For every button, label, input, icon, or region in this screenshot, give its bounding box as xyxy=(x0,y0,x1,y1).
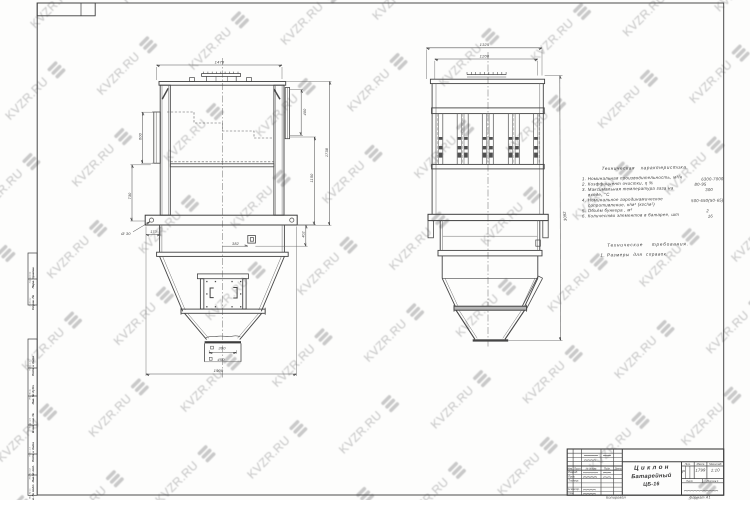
svg-text:1325: 1325 xyxy=(480,42,490,47)
svg-text:382: 382 xyxy=(232,242,240,246)
svg-text:450: 450 xyxy=(217,357,225,362)
svg-text:Инв. № по: Инв. № по xyxy=(29,488,32,499)
svg-text:170: 170 xyxy=(150,230,157,234)
svg-text:Формат А1: Формат А1 xyxy=(689,495,711,499)
svg-text:300: 300 xyxy=(218,346,226,351)
svg-text:Подп. и д: Подп. и д xyxy=(29,360,32,370)
svg-text:Подп. и д: Подп. и д xyxy=(29,446,32,456)
svg-text:Ø 30: Ø 30 xyxy=(120,231,131,236)
svg-text:Р: Р xyxy=(682,469,685,474)
svg-text:Ц и к л о н: Ц и к л о н xyxy=(634,464,669,472)
svg-text:2: 2 xyxy=(705,208,709,213)
svg-text:Подп.: Подп. xyxy=(604,466,611,470)
svg-text:Копировал: Копировал xyxy=(606,495,626,499)
svg-text:Н.контр.: Н.контр. xyxy=(568,487,580,491)
svg-text:80-95: 80-95 xyxy=(694,182,706,187)
svg-text:Масштаб: Масштаб xyxy=(709,462,722,466)
svg-text:Изм.: Изм. xyxy=(567,466,573,470)
svg-text:500-650(50-65): 500-650(50-65) xyxy=(691,198,724,204)
svg-text:Масса: Масса xyxy=(697,462,705,466)
svg-text:подписи: подписи xyxy=(29,297,32,306)
svg-text:600: 600 xyxy=(138,132,142,140)
svg-text:1:10: 1:10 xyxy=(711,467,721,472)
svg-text:Листов 1: Листов 1 xyxy=(705,479,719,483)
svg-text:Инв. № ду: Инв. № ду xyxy=(29,388,32,399)
svg-text:1738: 1738 xyxy=(325,147,329,157)
svg-text:Лист: Лист xyxy=(573,466,582,470)
svg-text:16: 16 xyxy=(708,213,714,218)
svg-text:Разраб.: Разраб. xyxy=(568,470,578,474)
svg-text:№ докум.: № докум. xyxy=(586,466,598,470)
svg-text:400: 400 xyxy=(303,108,307,116)
svg-text:1150: 1150 xyxy=(310,173,314,183)
svg-text:Батарейный: Батарейный xyxy=(631,472,672,480)
svg-text:1200: 1200 xyxy=(480,53,490,58)
svg-text:402: 402 xyxy=(302,231,306,237)
svg-text:Лист: Лист xyxy=(685,479,694,483)
svg-text:Взам. инв: Взам. инв xyxy=(30,417,32,428)
svg-text:1799: 1799 xyxy=(695,467,706,472)
svg-text:Дата: Дата xyxy=(614,466,622,470)
svg-text:документа: документа xyxy=(29,271,32,283)
svg-text:ЦБ-16: ЦБ-16 xyxy=(643,481,660,488)
svg-text:Лит.: Лит. xyxy=(684,462,691,466)
svg-text:730: 730 xyxy=(128,192,132,200)
svg-text:Т.контр.: Т.контр. xyxy=(568,479,579,483)
svg-text:1900: 1900 xyxy=(214,368,224,373)
svg-text:Пров.: Пров. xyxy=(568,474,575,478)
svg-text:Утв.: Утв. xyxy=(568,491,574,495)
svg-text:Инв.№ под: Инв.№ под xyxy=(29,467,32,479)
svg-text:1478: 1478 xyxy=(215,59,225,64)
svg-text:300: 300 xyxy=(705,187,713,192)
